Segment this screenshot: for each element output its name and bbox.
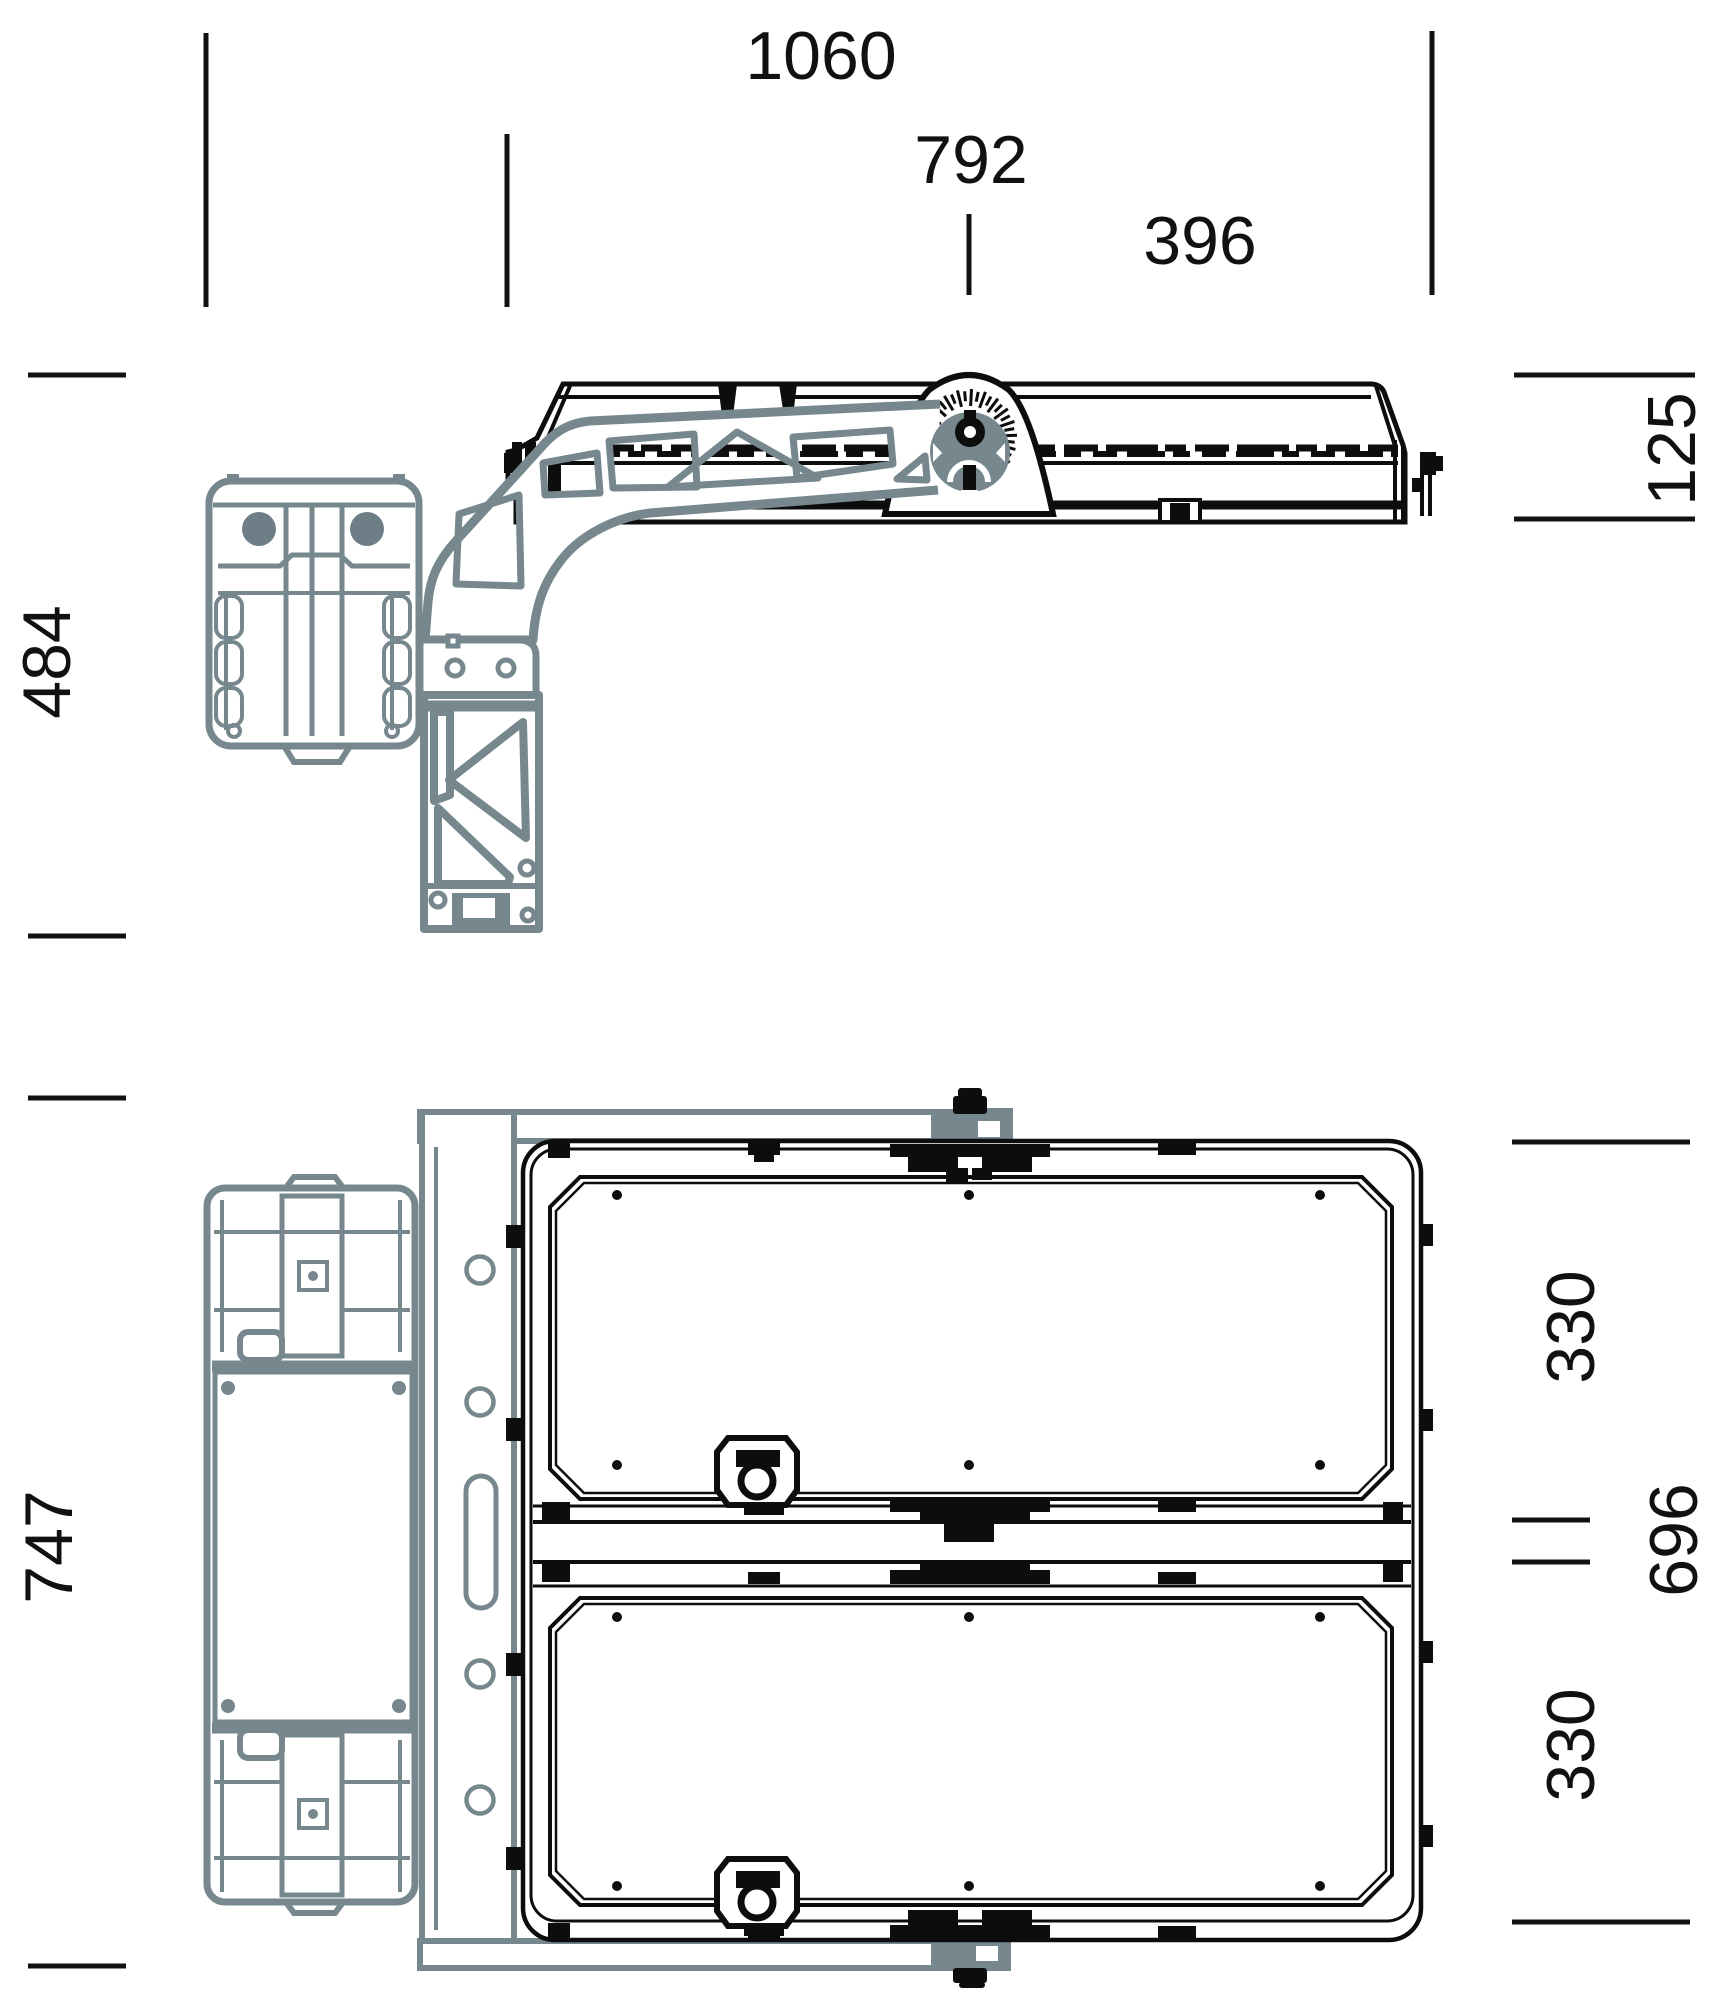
svg-text:696: 696 <box>1636 1483 1712 1596</box>
svg-text:330: 330 <box>1533 1270 1609 1383</box>
svg-text:792: 792 <box>914 122 1027 198</box>
svg-text:747: 747 <box>11 1490 87 1603</box>
svg-text:1060: 1060 <box>745 18 896 94</box>
svg-text:125: 125 <box>1634 392 1710 505</box>
svg-text:484: 484 <box>9 605 85 718</box>
svg-text:396: 396 <box>1143 203 1256 279</box>
svg-text:330: 330 <box>1533 1688 1609 1801</box>
